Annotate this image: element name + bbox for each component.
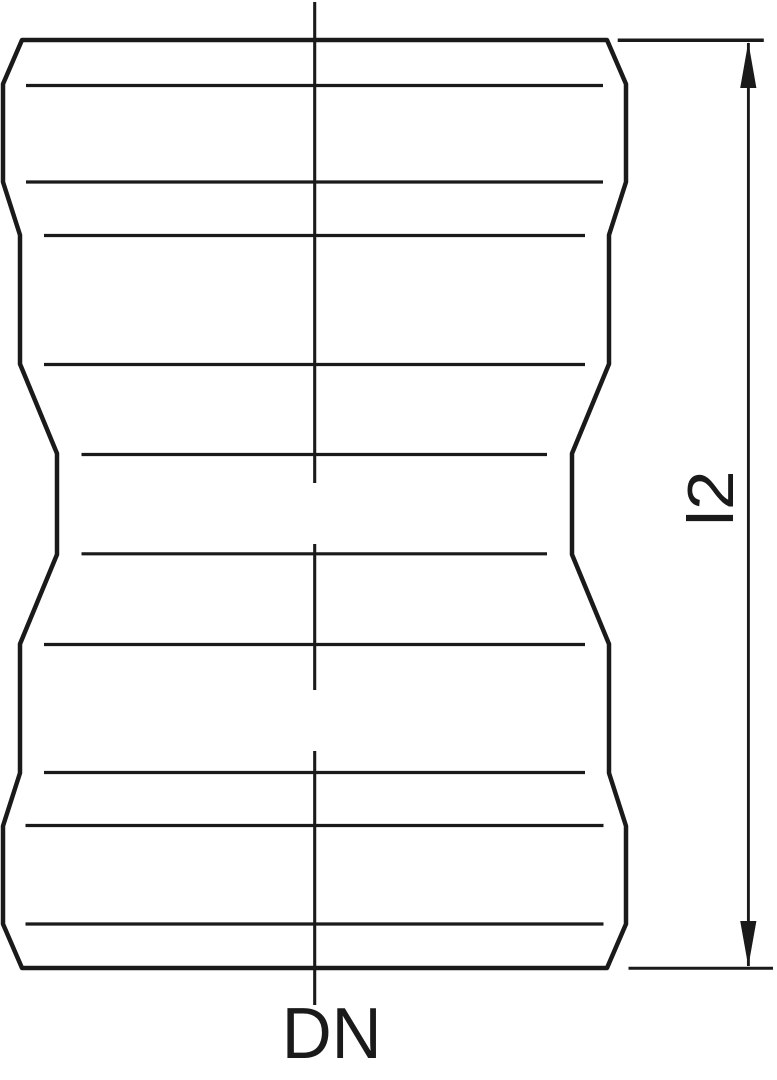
svg-text:l2: l2: [675, 470, 748, 526]
svg-text:DN: DN: [282, 993, 382, 1074]
